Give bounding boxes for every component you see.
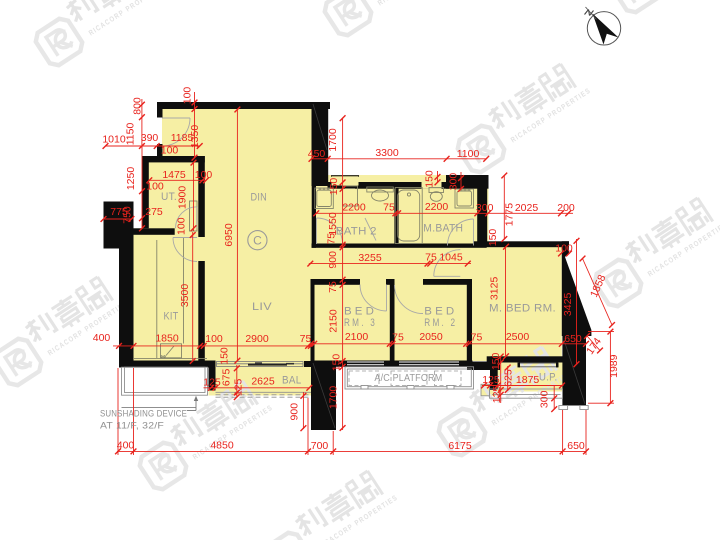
- svg-text:3125: 3125: [489, 277, 501, 301]
- svg-text:1350: 1350: [189, 125, 201, 149]
- svg-text:RM. 3: RM. 3: [344, 317, 377, 329]
- svg-text:1700: 1700: [327, 386, 339, 410]
- svg-text:650: 650: [564, 333, 582, 345]
- svg-text:200: 200: [557, 202, 575, 214]
- svg-text:100: 100: [205, 333, 223, 345]
- svg-text:3300: 3300: [375, 147, 399, 159]
- svg-text:700: 700: [311, 440, 329, 452]
- svg-text:UT.: UT.: [161, 191, 177, 203]
- svg-text:2625: 2625: [251, 376, 275, 388]
- svg-text:100: 100: [161, 145, 179, 157]
- svg-text:RM. 2: RM. 2: [424, 317, 457, 329]
- svg-text:1475: 1475: [162, 169, 186, 181]
- svg-text:2150: 2150: [328, 309, 340, 333]
- svg-text:1900: 1900: [177, 186, 189, 210]
- svg-text:3255: 3255: [358, 252, 382, 264]
- svg-text:2200: 2200: [425, 201, 449, 213]
- svg-text:1010: 1010: [102, 134, 126, 146]
- svg-text:650: 650: [567, 440, 585, 452]
- svg-text:300: 300: [448, 173, 460, 191]
- svg-text:3500: 3500: [179, 284, 191, 308]
- svg-text:625: 625: [503, 369, 515, 387]
- svg-text:6950: 6950: [223, 223, 235, 247]
- svg-text:1250: 1250: [125, 167, 137, 191]
- svg-text:900: 900: [289, 403, 301, 421]
- svg-text:75: 75: [383, 202, 395, 214]
- svg-text:BAL: BAL: [282, 375, 302, 387]
- svg-text:1045: 1045: [439, 252, 463, 264]
- svg-text:150: 150: [328, 178, 340, 196]
- svg-text:800: 800: [132, 97, 144, 115]
- svg-text:450: 450: [308, 148, 326, 160]
- svg-text:275: 275: [145, 206, 163, 218]
- svg-text:1700: 1700: [327, 128, 339, 152]
- svg-text:150: 150: [424, 170, 436, 188]
- svg-text:100: 100: [182, 87, 194, 105]
- svg-text:150: 150: [219, 347, 231, 365]
- svg-text:3425: 3425: [562, 293, 574, 317]
- svg-text:150: 150: [331, 354, 343, 372]
- svg-text:900: 900: [327, 251, 339, 269]
- svg-text:KIT: KIT: [164, 311, 179, 323]
- svg-text:BATH 2: BATH 2: [336, 226, 377, 238]
- svg-text:300: 300: [476, 202, 494, 214]
- svg-text:75: 75: [471, 332, 483, 344]
- svg-text:6175: 6175: [448, 440, 472, 452]
- svg-text:2500: 2500: [506, 331, 530, 343]
- svg-text:M.BATH: M.BATH: [423, 223, 463, 235]
- svg-text:U.P.: U.P.: [539, 372, 558, 384]
- svg-text:400: 400: [93, 332, 111, 344]
- svg-text:75: 75: [300, 333, 312, 345]
- svg-text:150: 150: [490, 352, 502, 370]
- svg-text:75: 75: [392, 332, 404, 344]
- svg-text:2200: 2200: [342, 202, 366, 214]
- svg-text:SUNSHADING DEVICE: SUNSHADING DEVICE: [100, 409, 187, 419]
- svg-text:2900: 2900: [245, 333, 269, 345]
- svg-text:1989: 1989: [608, 354, 620, 378]
- svg-text:A/C PLATFORM: A/C PLATFORM: [374, 373, 442, 384]
- svg-text:2025: 2025: [515, 202, 539, 214]
- svg-text:100: 100: [555, 243, 573, 255]
- svg-text:2100: 2100: [345, 331, 369, 343]
- svg-text:125: 125: [491, 386, 503, 404]
- svg-text:1850: 1850: [155, 333, 179, 345]
- svg-text:1100: 1100: [457, 148, 480, 160]
- svg-text:75: 75: [327, 281, 339, 293]
- svg-text:1150: 1150: [125, 123, 137, 146]
- svg-text:4850: 4850: [210, 440, 234, 452]
- svg-text:1775: 1775: [504, 203, 516, 227]
- svg-text:675: 675: [221, 368, 233, 386]
- svg-text:BED: BED: [344, 306, 377, 318]
- svg-text:DIN: DIN: [251, 192, 268, 204]
- svg-text:300: 300: [539, 390, 551, 408]
- svg-text:125: 125: [232, 378, 244, 396]
- svg-text:AT 11/F, 32/F: AT 11/F, 32/F: [100, 421, 164, 431]
- svg-text:150: 150: [487, 229, 499, 247]
- svg-text:1875: 1875: [516, 374, 540, 386]
- svg-text:125: 125: [203, 377, 221, 389]
- svg-text:2050: 2050: [419, 331, 443, 343]
- svg-text:125: 125: [482, 374, 500, 386]
- svg-text:100: 100: [195, 169, 213, 181]
- svg-text:LIV: LIV: [252, 301, 272, 313]
- svg-text:M. BED RM.: M. BED RM.: [489, 303, 556, 315]
- svg-text:750: 750: [122, 206, 134, 224]
- svg-text:390: 390: [141, 132, 159, 144]
- svg-text:100: 100: [176, 217, 188, 235]
- svg-text:C: C: [253, 234, 262, 248]
- svg-text:75: 75: [425, 252, 437, 264]
- svg-text:BED: BED: [424, 306, 457, 318]
- svg-text:400: 400: [117, 440, 135, 452]
